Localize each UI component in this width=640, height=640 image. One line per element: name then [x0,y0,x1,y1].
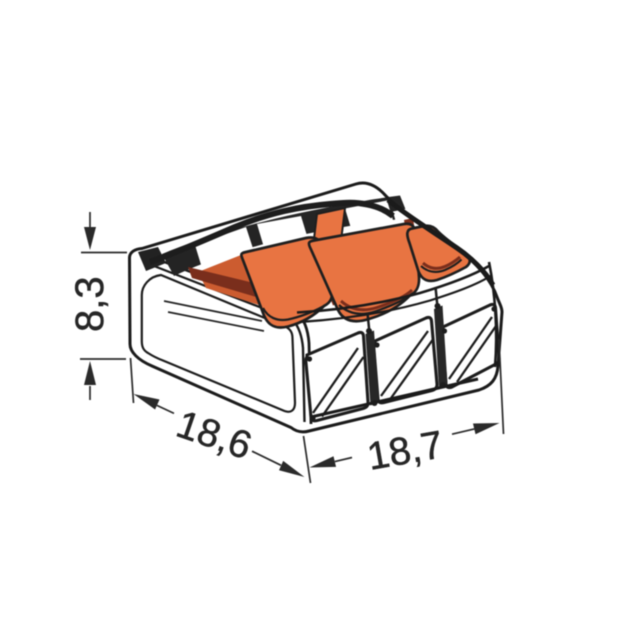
svg-text:18,6: 18,6 [171,403,257,468]
svg-text:18,7: 18,7 [364,423,446,479]
svg-text:8,3: 8,3 [68,276,112,332]
